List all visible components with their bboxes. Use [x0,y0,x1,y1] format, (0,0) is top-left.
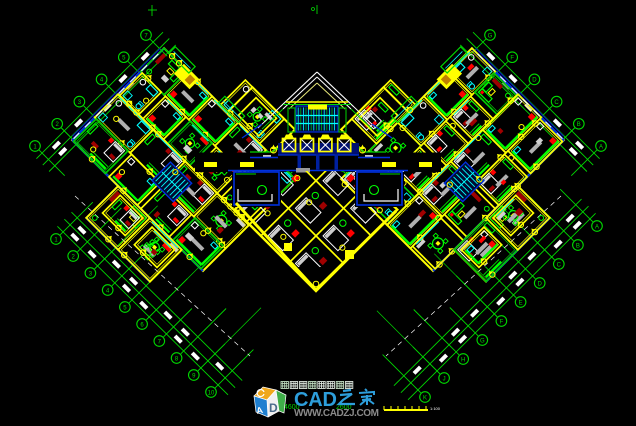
svg-text:B: B [577,122,581,128]
svg-text:F: F [510,56,514,62]
svg-text:E: E [519,300,523,306]
svg-text:G: G [488,33,493,39]
svg-text:A: A [599,144,603,150]
svg-text:A: A [595,224,599,230]
svg-text:D: D [538,281,543,287]
svg-text:1:100: 1:100 [430,406,441,411]
svg-text:10: 10 [208,390,215,396]
svg-text:B: B [576,243,580,249]
svg-text:K: K [423,395,427,401]
svg-text:H: H [461,357,465,363]
svg-text:WWW.CADZJ.COM: WWW.CADZJ.COM [294,408,379,419]
svg-text:D: D [532,78,537,84]
svg-text:C: C [557,262,562,268]
svg-text:G: G [480,338,485,344]
svg-text:D: D [269,401,278,415]
svg-text:J: J [443,376,446,382]
svg-text:F: F [500,319,504,325]
svg-text:C: C [554,100,559,106]
